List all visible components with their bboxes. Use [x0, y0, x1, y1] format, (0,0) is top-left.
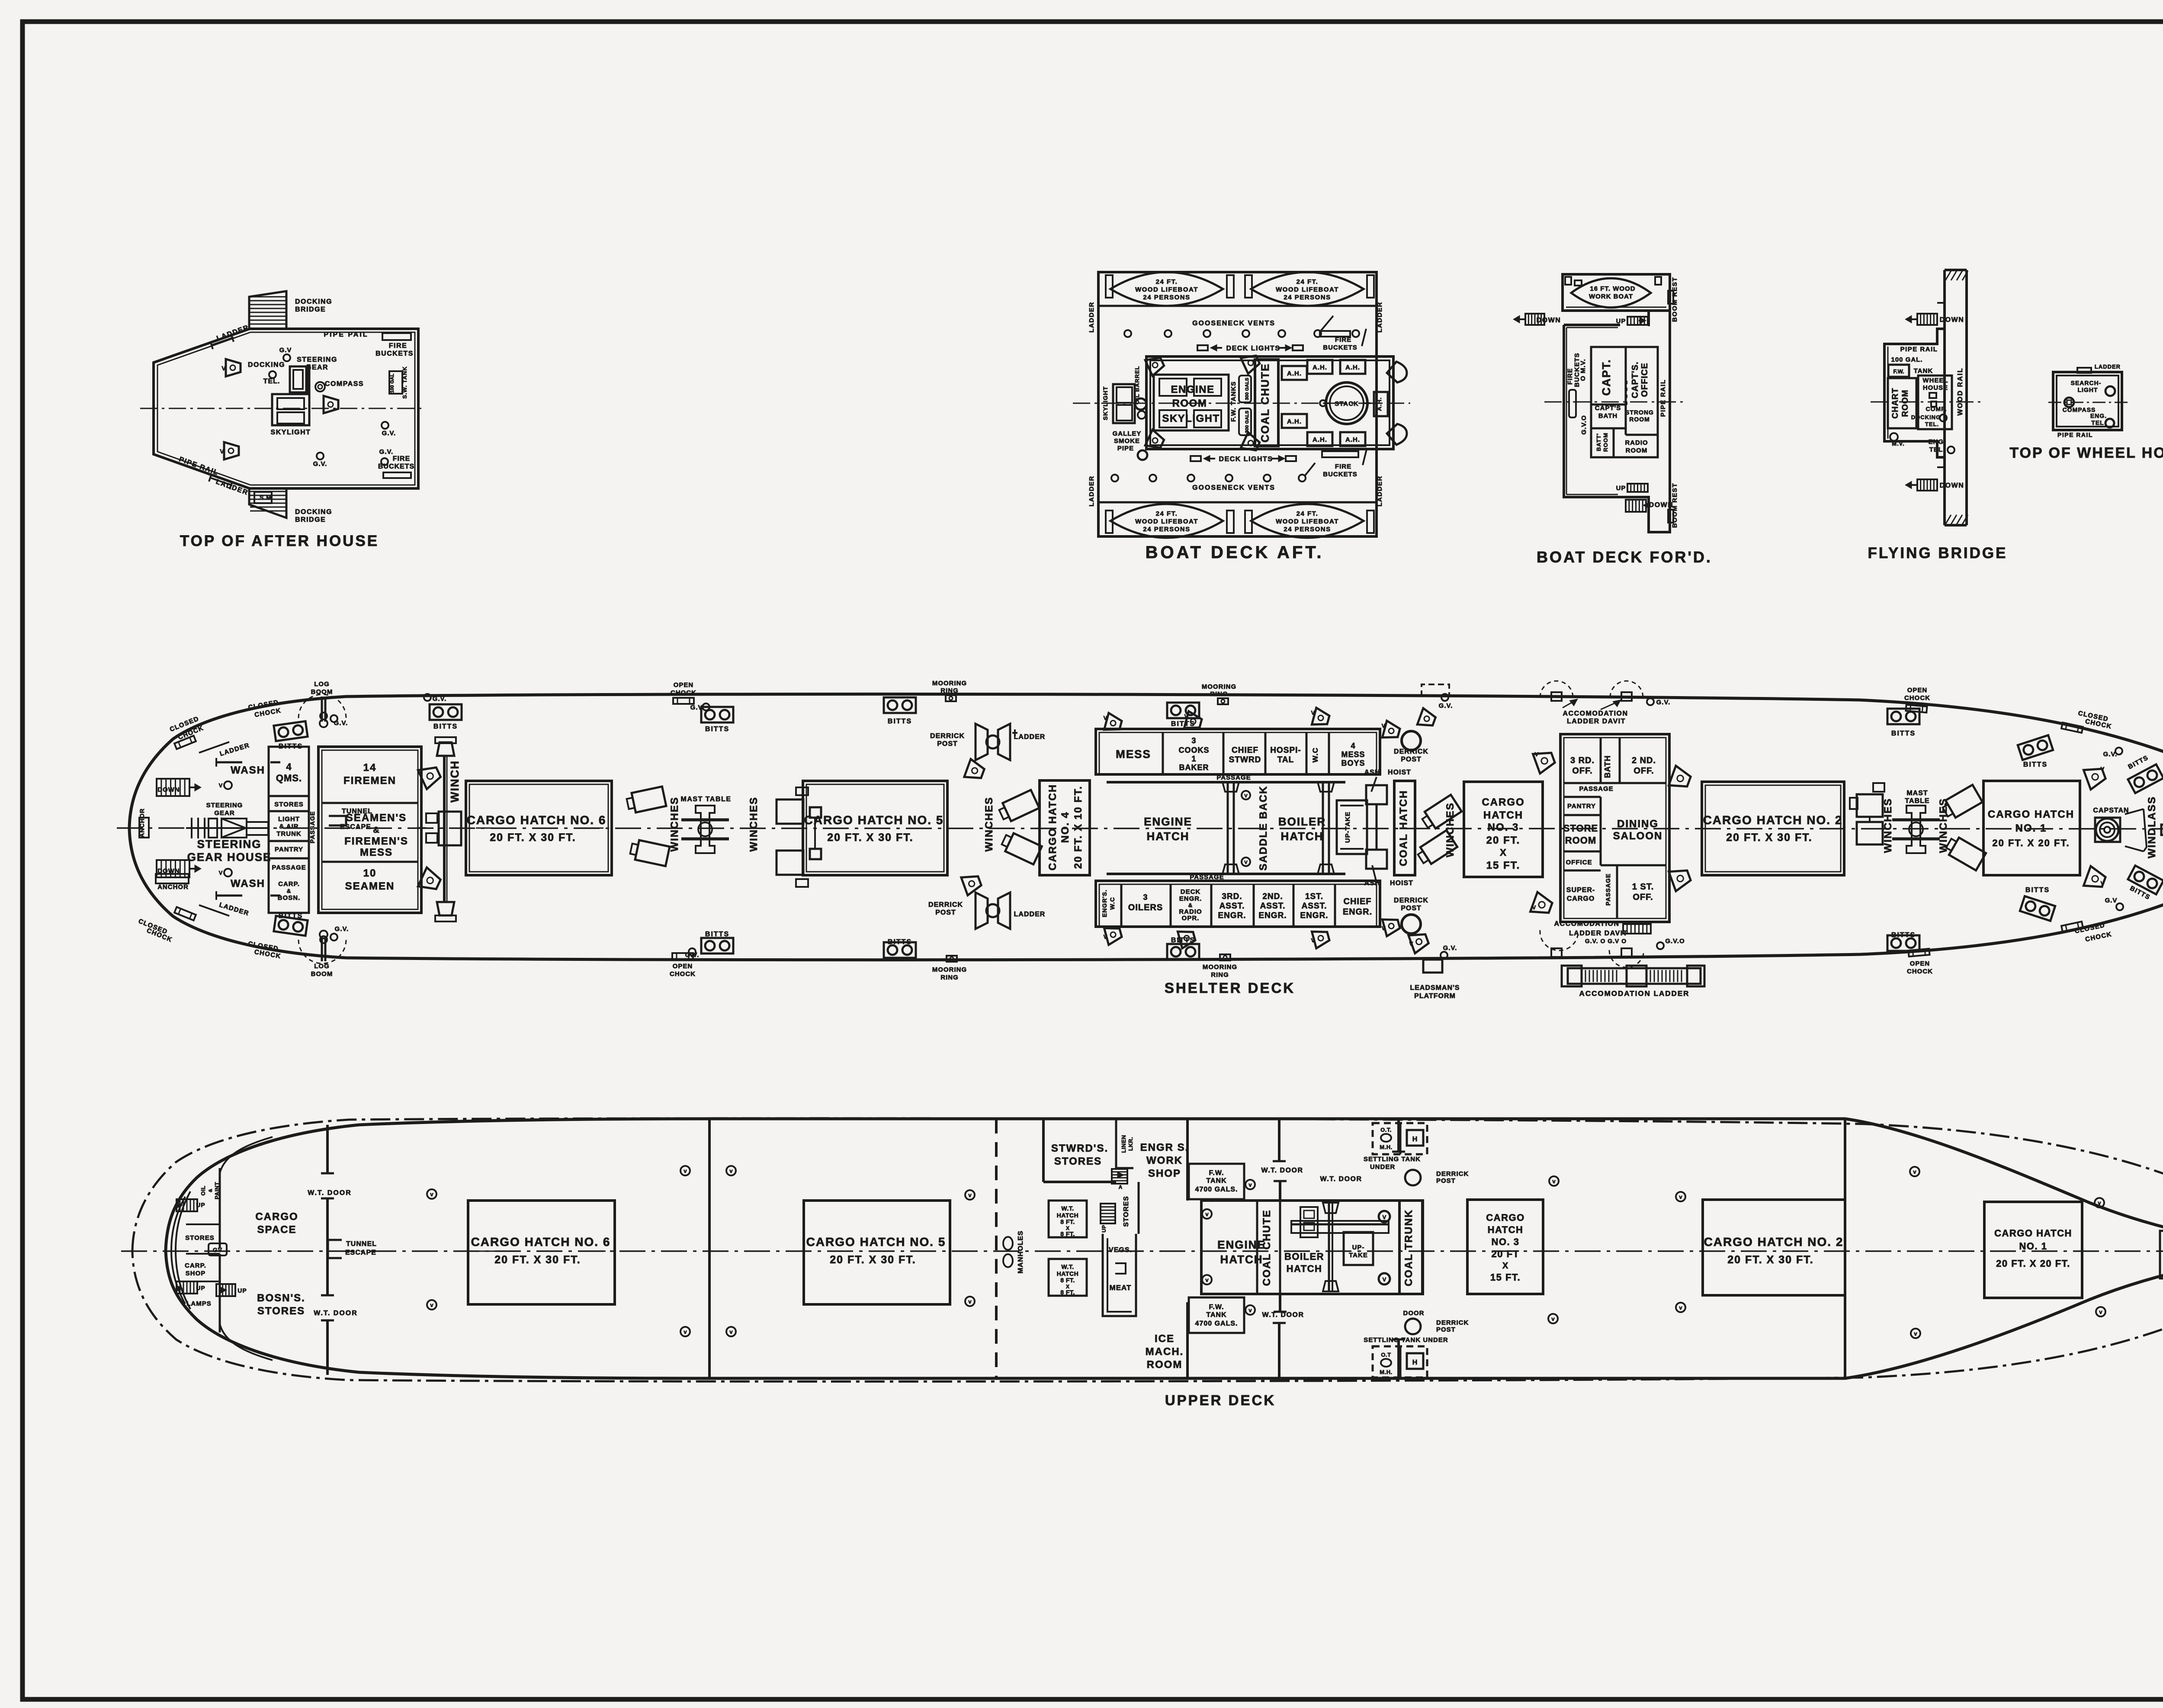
- svg-text:v: v: [968, 1298, 972, 1305]
- svg-text:TUNNEL: TUNNEL: [346, 1240, 377, 1248]
- svg-text:DOWN: DOWN: [1940, 482, 1964, 489]
- svg-text:GV: GV: [213, 1246, 222, 1253]
- svg-text:RADIO: RADIO: [1625, 439, 1648, 446]
- svg-text:CAPT'S.: CAPT'S.: [1630, 361, 1640, 398]
- svg-text:WINCHES: WINCHES: [983, 796, 995, 851]
- svg-text:ASH: ASH: [1364, 769, 1380, 776]
- svg-text:A.H.: A.H.: [1313, 436, 1327, 443]
- svg-text:DECK LIGHTS: DECK LIGHTS: [1219, 456, 1273, 463]
- svg-text:RING: RING: [1211, 971, 1229, 979]
- svg-text:OFF.: OFF.: [1633, 766, 1654, 776]
- svg-text:CARGO HATCH NO. 5: CARGO HATCH NO. 5: [806, 1235, 946, 1249]
- svg-text:V: V: [1382, 722, 1386, 729]
- svg-text:v: v: [1914, 1330, 1917, 1337]
- svg-text:WINCHES: WINCHES: [1444, 802, 1456, 857]
- svg-text:ENGINE: ENGINE: [1171, 384, 1214, 395]
- svg-text:HOUSE: HOUSE: [1923, 384, 1948, 392]
- svg-text:FIRE: FIRE: [393, 455, 410, 462]
- svg-text:GEAR HOUSE: GEAR HOUSE: [187, 851, 272, 864]
- svg-text:300 GALS: 300 GALS: [1245, 411, 1250, 433]
- svg-text:v: v: [968, 1192, 972, 1198]
- svg-text:4700 GALS.: 4700 GALS.: [1195, 1320, 1238, 1327]
- svg-text:STEERING: STEERING: [297, 356, 337, 363]
- svg-text:15 FT.: 15 FT.: [1490, 1272, 1521, 1283]
- svg-text:ENG.: ENG.: [2090, 412, 2107, 419]
- svg-text:G.V: G.V: [2105, 897, 2118, 904]
- svg-text:OIL: OIL: [200, 1185, 206, 1195]
- svg-text:HATCH: HATCH: [1057, 1212, 1078, 1219]
- svg-text:CARGO HATCH NO. 6: CARGO HATCH NO. 6: [471, 1235, 611, 1249]
- svg-text:POST: POST: [1401, 756, 1422, 763]
- svg-text:PIPE: PIPE: [1117, 445, 1134, 452]
- svg-text:WINCH: WINCH: [448, 760, 461, 803]
- svg-text:UP: UP: [196, 1284, 205, 1291]
- svg-text:MACH.: MACH.: [1146, 1346, 1184, 1358]
- svg-text:CHIEF: CHIEF: [1344, 897, 1372, 906]
- svg-text:F.W. TANKS: F.W. TANKS: [1230, 381, 1237, 422]
- svg-text:PASSAGE: PASSAGE: [309, 811, 316, 843]
- svg-text:LADDER: LADDER: [1014, 733, 1046, 741]
- svg-text:V: V: [1244, 793, 1248, 799]
- svg-text:TAKE: TAKE: [1349, 1252, 1368, 1259]
- svg-text:HOIST: HOIST: [1390, 880, 1413, 887]
- svg-text:NO. 1: NO. 1: [2019, 1241, 2047, 1252]
- svg-text:ENGINE: ENGINE: [1217, 1238, 1266, 1251]
- svg-text:O M.V.: O M.V.: [1579, 359, 1587, 381]
- svg-text:8 FT.: 8 FT.: [1060, 1289, 1075, 1296]
- svg-text:SADDLE BACK: SADDLE BACK: [1258, 786, 1269, 871]
- svg-text:DERRICK: DERRICK: [928, 901, 963, 909]
- svg-text:PIPE PAIL: PIPE PAIL: [324, 331, 368, 338]
- svg-text:24 PERSONS: 24 PERSONS: [1284, 526, 1331, 533]
- svg-text:FIREMEN: FIREMEN: [343, 775, 396, 787]
- svg-text:TANK: TANK: [1914, 367, 1933, 375]
- svg-text:WOOD LIFEBOAT: WOOD LIFEBOAT: [1135, 518, 1198, 525]
- svg-text:O.T: O.T: [1381, 1352, 1391, 1358]
- svg-text:ICE: ICE: [1155, 1333, 1175, 1345]
- svg-text:ROOM: ROOM: [1602, 433, 1609, 452]
- svg-text:NO. 4: NO. 4: [1059, 812, 1071, 843]
- svg-text:STORE: STORE: [1563, 823, 1598, 834]
- svg-text:HATCH: HATCH: [1287, 1263, 1322, 1274]
- svg-text:ROOM: ROOM: [1626, 447, 1648, 454]
- svg-text:1ST.: 1ST.: [1305, 892, 1323, 901]
- svg-text:&: &: [208, 1189, 213, 1192]
- svg-text:WOOD RAIL: WOOD RAIL: [1957, 367, 1964, 415]
- svg-text:4: 4: [286, 761, 292, 772]
- svg-text:LADDER: LADDER: [1376, 475, 1383, 507]
- svg-text:v: v: [1248, 1307, 1252, 1313]
- svg-text:ENG.: ENG.: [1929, 438, 1946, 446]
- svg-text:ACCOMODATION: ACCOMODATION: [1563, 710, 1628, 717]
- svg-text:HATCH: HATCH: [1488, 1224, 1524, 1235]
- svg-text:CHOCK: CHOCK: [670, 970, 696, 978]
- svg-text:v: v: [430, 1191, 433, 1198]
- svg-text:DOCKING: DOCKING: [1911, 414, 1941, 421]
- svg-text:FIRE: FIRE: [1335, 463, 1351, 470]
- svg-text:3: 3: [1191, 736, 1196, 745]
- svg-text:X: X: [1500, 847, 1507, 858]
- svg-text:v: v: [1248, 1181, 1252, 1188]
- svg-text:PIPE RAIL: PIPE RAIL: [2057, 431, 2093, 438]
- svg-text:W.C: W.C: [1109, 897, 1116, 909]
- svg-text:SUPER-: SUPER-: [1566, 886, 1595, 894]
- svg-text:CARGO HATCH NO. 2: CARGO HATCH NO. 2: [1703, 813, 1843, 827]
- svg-text:G.V.: G.V.: [2103, 751, 2118, 758]
- svg-text:LIGHT: LIGHT: [2078, 386, 2098, 393]
- svg-text:TABLE: TABLE: [1905, 797, 1929, 805]
- svg-text:CAPSTAN: CAPSTAN: [2093, 807, 2129, 814]
- svg-text:RING: RING: [1210, 690, 1228, 698]
- svg-text:COOKS: COOKS: [1178, 746, 1209, 754]
- svg-text:SETTLING TANK UNDER: SETTLING TANK UNDER: [1364, 1336, 1448, 1344]
- svg-text:W.T. DOOR: W.T. DOOR: [1320, 1175, 1362, 1183]
- svg-text:LADDER: LADDER: [2095, 363, 2121, 370]
- svg-text:SEAMEN'S: SEAMEN'S: [346, 812, 407, 824]
- svg-text:WINCHES: WINCHES: [1882, 798, 1894, 853]
- svg-text:LIGHT: LIGHT: [278, 815, 300, 823]
- svg-text:SHELTER DECK: SHELTER DECK: [1165, 980, 1295, 996]
- svg-text:LINEN: LINEN: [1120, 1135, 1127, 1153]
- svg-text:BUCKETS: BUCKETS: [1323, 471, 1357, 478]
- svg-text:OFF.: OFF.: [1572, 766, 1592, 776]
- svg-text:ROOM: ROOM: [1901, 389, 1910, 417]
- svg-text:MAST TABLE: MAST TABLE: [681, 796, 732, 803]
- svg-text:M.H.: M.H.: [1380, 1144, 1392, 1150]
- svg-text:ACCOMODATION: ACCOMODATION: [1554, 920, 1619, 928]
- svg-text:20 FT. X 30 FT.: 20 FT. X 30 FT.: [490, 832, 576, 844]
- svg-text:H: H: [1412, 1359, 1418, 1366]
- svg-text:ENGR.: ENGR.: [1300, 911, 1328, 920]
- svg-text:ENGINE: ENGINE: [1144, 815, 1192, 828]
- svg-text:S.W. TANK: S.W. TANK: [401, 366, 408, 398]
- svg-text:TANK: TANK: [1206, 1311, 1226, 1319]
- svg-text:BATH: BATH: [1598, 412, 1618, 420]
- svg-text:G.V.: G.V.: [1439, 702, 1453, 710]
- svg-text:20 FT.: 20 FT.: [1486, 835, 1521, 846]
- svg-text:G.V.: G.V.: [335, 925, 349, 933]
- svg-text:20 FT. X 30 FT.: 20 FT. X 30 FT.: [494, 1254, 581, 1266]
- svg-text:W.T. DOOR: W.T. DOOR: [1262, 1311, 1304, 1319]
- svg-text:G.V. O G.V O: G.V. O G.V O: [1585, 937, 1627, 944]
- svg-text:MAST: MAST: [1906, 790, 1928, 797]
- svg-text:SETTLING TANK: SETTLING TANK: [1364, 1156, 1421, 1163]
- svg-text:WINCHES: WINCHES: [748, 796, 760, 851]
- svg-text:LADDER DAVIT: LADDER DAVIT: [1567, 718, 1626, 725]
- svg-text:RING: RING: [940, 687, 959, 694]
- svg-text:A.H.: A.H.: [1313, 364, 1327, 371]
- svg-text:BITTS: BITTS: [2023, 761, 2047, 768]
- svg-text:HOIST: HOIST: [1388, 769, 1411, 776]
- svg-text:G.V: G.V: [279, 347, 292, 354]
- svg-text:OFFICE: OFFICE: [1640, 363, 1650, 397]
- svg-text:LADDER: LADDER: [1014, 911, 1046, 918]
- svg-text:DECK: DECK: [1181, 888, 1201, 896]
- svg-text:QMS.: QMS.: [276, 773, 302, 783]
- svg-text:ENGR S.: ENGR S.: [1140, 1142, 1189, 1153]
- svg-text:MANHOLES: MANHOLES: [1017, 1230, 1024, 1274]
- svg-text:TANK: TANK: [1206, 1177, 1226, 1185]
- svg-text:LEADSMAN'S: LEADSMAN'S: [1410, 984, 1460, 992]
- svg-text:A: A: [1119, 1184, 1123, 1190]
- svg-text:V: V: [2101, 880, 2105, 886]
- svg-text:BITTS: BITTS: [279, 912, 303, 920]
- svg-text:F.W.: F.W.: [1209, 1169, 1224, 1177]
- svg-text:V: V: [220, 448, 224, 455]
- svg-text:M.H.: M.H.: [1380, 1369, 1392, 1375]
- svg-text:& AIR: & AIR: [279, 823, 298, 830]
- svg-text:UP-TAKE: UP-TAKE: [1344, 812, 1351, 843]
- svg-text:CARGO HATCH NO. 5: CARGO HATCH NO. 5: [804, 813, 944, 827]
- svg-text:UP: UP: [1616, 318, 1626, 325]
- svg-text:TEL.: TEL.: [263, 378, 280, 385]
- svg-text:PASSAGE: PASSAGE: [1216, 774, 1251, 781]
- svg-text:V: V: [1104, 715, 1107, 721]
- svg-text:COMPASS: COMPASS: [325, 380, 364, 388]
- svg-text:G.V.O: G.V.O: [1665, 937, 1685, 945]
- svg-text:G.V.: G.V.: [379, 448, 394, 456]
- svg-text:ROOM: ROOM: [1629, 416, 1650, 423]
- svg-text:STORES: STORES: [274, 801, 303, 808]
- svg-text:24 FT.: 24 FT.: [1297, 278, 1319, 286]
- svg-text:SEAMEN: SEAMEN: [345, 880, 395, 892]
- svg-text:24 PERSONS: 24 PERSONS: [1143, 294, 1190, 301]
- svg-text:NO. 3: NO. 3: [1488, 822, 1519, 833]
- svg-text:WOOD LIFEBOAT: WOOD LIFEBOAT: [1276, 286, 1339, 293]
- svg-text:PASSAGE: PASSAGE: [272, 864, 306, 871]
- svg-text:UP: UP: [1616, 485, 1626, 492]
- svg-text:SKYLIGHT: SKYLIGHT: [1162, 413, 1219, 424]
- svg-text:UP-: UP-: [1352, 1244, 1365, 1251]
- svg-text:24 FT.: 24 FT.: [1156, 510, 1178, 517]
- svg-text:ASST.: ASST.: [1260, 902, 1286, 911]
- svg-text:W.T.: W.T.: [1061, 1205, 1074, 1212]
- svg-text:v: v: [684, 1168, 687, 1174]
- svg-text:WHEEL: WHEEL: [1922, 377, 1948, 384]
- svg-text:O.T.: O.T.: [1380, 1127, 1392, 1133]
- svg-text:20 FT. X 30 FT.: 20 FT. X 30 FT.: [1727, 1254, 1814, 1266]
- svg-text:SPACE: SPACE: [257, 1224, 297, 1236]
- svg-text:DINING: DINING: [1617, 818, 1659, 830]
- svg-text:BOILER: BOILER: [1278, 815, 1326, 828]
- svg-text:MESS: MESS: [1116, 748, 1151, 761]
- svg-text:BATT': BATT': [1595, 433, 1602, 451]
- svg-text:BITTS: BITTS: [1891, 730, 1916, 737]
- svg-text:10: 10: [363, 867, 377, 879]
- svg-text:G.V.: G.V.: [1656, 699, 1671, 706]
- svg-text:CARGO HATCH: CARGO HATCH: [1994, 1228, 2072, 1239]
- svg-text:20 FT. X 20 FT.: 20 FT. X 20 FT.: [1992, 838, 2070, 848]
- svg-text:CHOCK: CHOCK: [671, 689, 696, 697]
- svg-text:STORES: STORES: [1123, 1196, 1130, 1227]
- svg-text:BUCKETS: BUCKETS: [378, 463, 414, 470]
- svg-text:BUCKETS: BUCKETS: [1323, 344, 1357, 351]
- svg-text:100 GAL.: 100 GAL.: [1891, 356, 1922, 363]
- svg-text:ANCHOR: ANCHOR: [157, 883, 189, 891]
- svg-text:SMOKE: SMOKE: [1114, 437, 1140, 445]
- svg-text:24 PERSONS: 24 PERSONS: [1284, 294, 1331, 301]
- svg-text:MOORING: MOORING: [1202, 683, 1236, 690]
- svg-text:CARGO: CARGO: [255, 1211, 298, 1223]
- svg-text:v: v: [729, 1329, 733, 1335]
- svg-text:v: v: [1205, 1211, 1209, 1217]
- svg-text:W.T. DOOR: W.T. DOOR: [314, 1310, 358, 1317]
- svg-text:BITTS: BITTS: [705, 931, 729, 938]
- svg-text:BOYS: BOYS: [1341, 759, 1365, 767]
- svg-text:FIREMEN'S: FIREMEN'S: [344, 835, 408, 847]
- svg-text:SHOP: SHOP: [1148, 1168, 1181, 1179]
- svg-text:CARP.: CARP.: [278, 880, 300, 888]
- svg-text:OPEN: OPEN: [674, 681, 694, 689]
- svg-text:V: V: [1177, 937, 1181, 944]
- svg-text:A.H.: A.H.: [1287, 370, 1302, 377]
- svg-text:BITTS: BITTS: [888, 718, 912, 725]
- svg-text:v: v: [1552, 1178, 1556, 1185]
- svg-text:8 FT.: 8 FT.: [1060, 1230, 1075, 1237]
- svg-text:UPPER DECK: UPPER DECK: [1165, 1392, 1276, 1408]
- svg-text:DOWN: DOWN: [157, 786, 180, 793]
- svg-text:UP: UP: [1101, 1225, 1107, 1233]
- svg-text:UP: UP: [196, 1201, 205, 1208]
- svg-text:TEL.: TEL.: [1925, 421, 1939, 427]
- svg-text:v: v: [1913, 1169, 1916, 1175]
- svg-text:WORK BOAT: WORK BOAT: [1589, 293, 1633, 300]
- svg-text:V: V: [1104, 934, 1107, 940]
- svg-text:&: &: [373, 825, 379, 835]
- svg-text:LADDER: LADDER: [1088, 302, 1095, 333]
- svg-text:FIRE: FIRE: [1335, 336, 1351, 344]
- svg-text:A.H.: A.H.: [1376, 397, 1383, 411]
- svg-text:BITTS: BITTS: [888, 938, 912, 946]
- svg-text:V: V: [221, 365, 226, 372]
- svg-text:20 FT. X 20 FT.: 20 FT. X 20 FT.: [1996, 1258, 2070, 1269]
- svg-text:X: X: [1502, 1261, 1508, 1271]
- svg-text:BOAT DECK FOR'D.: BOAT DECK FOR'D.: [1537, 548, 1712, 566]
- svg-text:LOG: LOG: [314, 681, 330, 688]
- svg-text:ENGR.: ENGR.: [1258, 911, 1287, 920]
- svg-text:BATH: BATH: [1603, 755, 1612, 778]
- svg-text:UNDER: UNDER: [1370, 1163, 1395, 1171]
- svg-text:BRIDGE: BRIDGE: [295, 516, 326, 523]
- svg-text:OPEN: OPEN: [673, 963, 693, 970]
- svg-text:COMP.: COMP.: [1926, 405, 1947, 412]
- svg-text:v: v: [1679, 1194, 1682, 1200]
- svg-text:A.H.: A.H.: [1345, 364, 1360, 371]
- svg-text:OFFICE: OFFICE: [1566, 859, 1592, 866]
- svg-text:COAL HATCH: COAL HATCH: [1398, 790, 1409, 866]
- svg-text:BAKER: BAKER: [1179, 763, 1209, 772]
- svg-text:F.W.: F.W.: [1893, 368, 1904, 375]
- svg-text:ENGR'S.: ENGR'S.: [1101, 889, 1108, 917]
- svg-text:V: V: [1532, 904, 1536, 911]
- svg-text:20 FT. X 30 FT.: 20 FT. X 30 FT.: [1726, 832, 1813, 844]
- svg-text:HATCH: HATCH: [1057, 1270, 1078, 1277]
- svg-text:H: H: [1412, 1136, 1418, 1143]
- svg-text:CARGO HATCH: CARGO HATCH: [1047, 784, 1059, 870]
- svg-text:DOWN: DOWN: [1649, 501, 1674, 509]
- svg-text:CARGO: CARGO: [1482, 796, 1524, 808]
- svg-text:COAL CHUTE: COAL CHUTE: [1261, 1210, 1273, 1286]
- svg-text:PASSAGE: PASSAGE: [1579, 785, 1613, 793]
- svg-text:SKYLIGHT: SKYLIGHT: [271, 429, 311, 436]
- svg-text:&: &: [287, 888, 291, 894]
- svg-text:4700 GALS.: 4700 GALS.: [1195, 1186, 1238, 1193]
- svg-text:DERRICK: DERRICK: [930, 732, 965, 740]
- svg-text:CARGO: CARGO: [1567, 895, 1595, 902]
- svg-text:MESS: MESS: [360, 847, 393, 858]
- svg-text:PIPE RAIL: PIPE RAIL: [1900, 346, 1938, 353]
- svg-text:WOOD LIFEBOAT: WOOD LIFEBOAT: [1276, 518, 1339, 525]
- svg-text:HATCH: HATCH: [1483, 809, 1523, 821]
- svg-text:BUCKETS: BUCKETS: [375, 350, 414, 357]
- svg-text:CHIEF: CHIEF: [1232, 746, 1258, 755]
- svg-text:HATCH: HATCH: [1280, 830, 1323, 843]
- svg-text:100 GAL: 100 GAL: [390, 373, 395, 393]
- svg-text:&: &: [1188, 902, 1193, 909]
- svg-text:PASSAGE: PASSAGE: [1605, 873, 1611, 905]
- svg-text:VEGS.: VEGS.: [1109, 1246, 1132, 1254]
- svg-text:20 FT: 20 FT: [1492, 1249, 1520, 1259]
- svg-text:v: v: [1679, 1304, 1682, 1311]
- svg-text:v: v: [2098, 1200, 2101, 1206]
- svg-text:PLATFORM: PLATFORM: [1414, 992, 1456, 1000]
- svg-text:2 ND.: 2 ND.: [1632, 756, 1656, 765]
- svg-text:W.C: W.C: [1311, 747, 1319, 762]
- svg-text:MOORING: MOORING: [932, 966, 967, 973]
- svg-text:BOAT DECK AFT.: BOAT DECK AFT.: [1146, 543, 1324, 562]
- svg-text:POST: POST: [1401, 905, 1422, 912]
- svg-text:CARGO HATCH NO. 2: CARGO HATCH NO. 2: [1704, 1235, 1844, 1249]
- svg-text:MESS: MESS: [1341, 750, 1365, 759]
- svg-text:POST: POST: [937, 740, 958, 748]
- svg-text:OILERS: OILERS: [1128, 903, 1163, 912]
- svg-text:20 FT. X 10 FT.: 20 FT. X 10 FT.: [1072, 786, 1084, 869]
- svg-text:GOOSENECK VENTS: GOOSENECK VENTS: [1192, 484, 1275, 491]
- svg-text:PIPE RAIL: PIPE RAIL: [1659, 379, 1667, 417]
- svg-text:STORES: STORES: [1054, 1156, 1102, 1167]
- svg-text:UP: UP: [237, 1287, 247, 1294]
- svg-text:V: V: [1311, 710, 1315, 716]
- svg-text:24 FT.: 24 FT.: [1297, 510, 1319, 517]
- svg-text:STEERING: STEERING: [206, 802, 243, 809]
- svg-text:LKR.: LKR.: [1127, 1137, 1134, 1151]
- svg-text:8 FT.: 8 FT.: [1060, 1277, 1075, 1284]
- svg-text:ENGR.: ENGR.: [1179, 895, 1202, 902]
- svg-text:CAPT'S: CAPT'S: [1595, 405, 1621, 412]
- svg-text:TEL: TEL: [2091, 419, 2104, 426]
- svg-text:BOSN'S.: BOSN'S.: [257, 1292, 305, 1304]
- svg-text:V: V: [1244, 860, 1248, 865]
- svg-text:DERRICK: DERRICK: [1394, 897, 1428, 904]
- svg-text:3: 3: [1143, 893, 1148, 902]
- svg-text:OPEN: OPEN: [1910, 960, 1930, 967]
- svg-text:V: V: [1383, 1214, 1386, 1220]
- svg-text:v: v: [729, 1168, 733, 1174]
- svg-text:ROOM: ROOM: [1147, 1359, 1183, 1371]
- svg-text:CHOCK: CHOCK: [1907, 968, 1933, 975]
- svg-text:CAPT.: CAPT.: [1600, 359, 1613, 395]
- svg-text:DOWN: DOWN: [1537, 317, 1561, 324]
- svg-text:MEAT: MEAT: [1110, 1284, 1132, 1292]
- svg-text:PAINT: PAINT: [214, 1182, 220, 1200]
- svg-text:ROOM: ROOM: [1565, 835, 1596, 846]
- svg-text:CHOCK: CHOCK: [1904, 694, 1930, 702]
- svg-text:ASST.: ASST.: [1302, 902, 1327, 911]
- svg-text:TRUNK: TRUNK: [276, 830, 302, 838]
- svg-text:PANTRY: PANTRY: [275, 846, 303, 853]
- svg-text:V: V: [1383, 1276, 1386, 1283]
- svg-text:FLYING BRIDGE: FLYING BRIDGE: [1868, 545, 2008, 562]
